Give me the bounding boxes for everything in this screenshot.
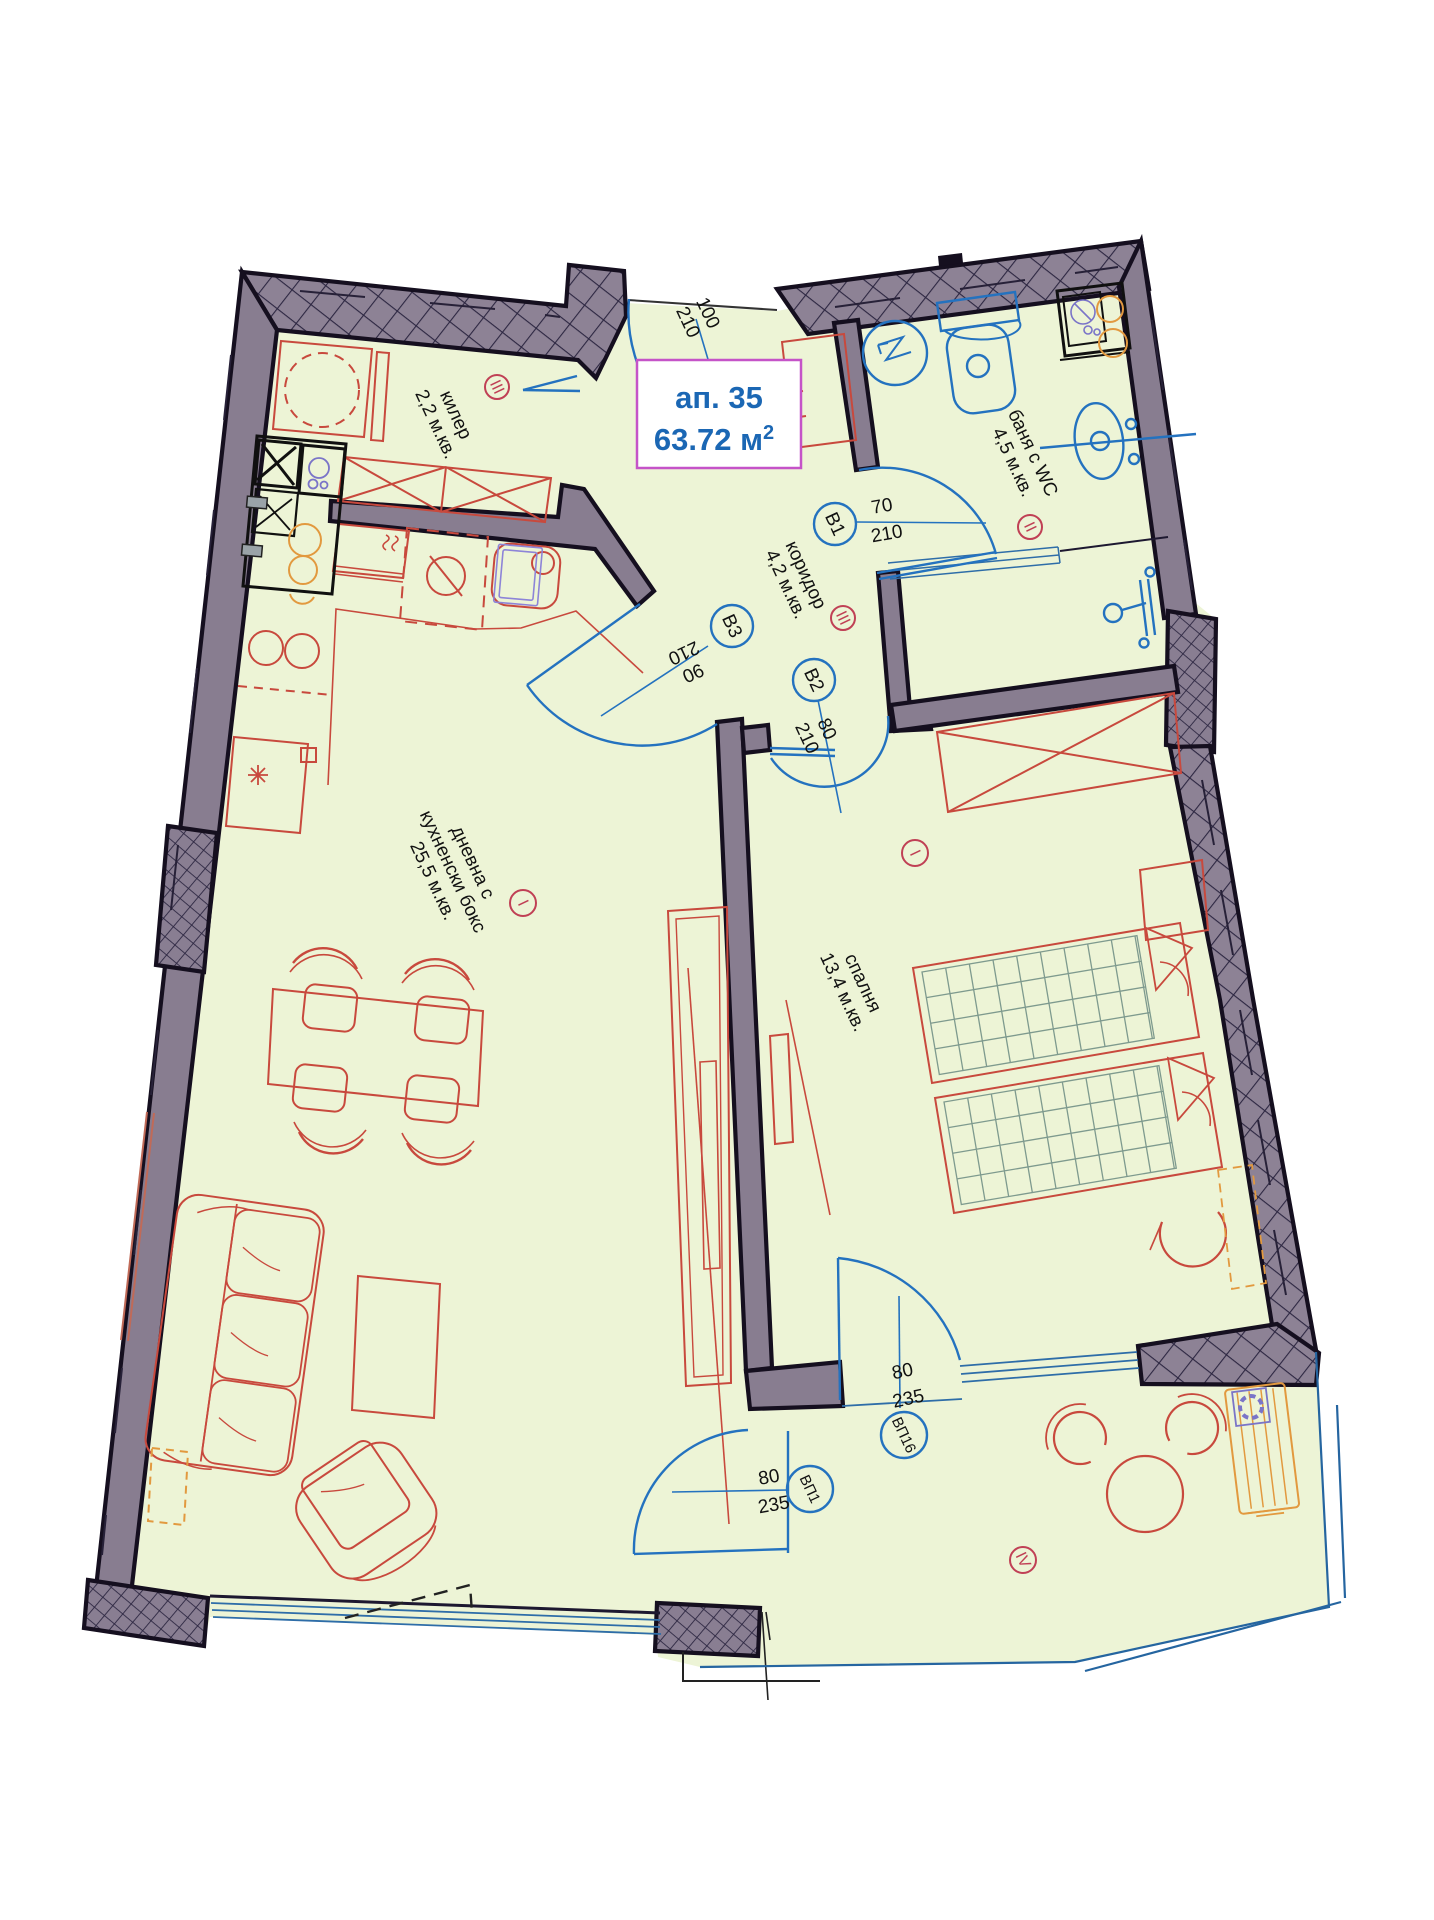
svg-text:70: 70 — [870, 494, 894, 518]
svg-text:ап. 35: ап. 35 — [675, 380, 763, 415]
svg-text:80: 80 — [757, 1465, 781, 1489]
svg-text:80: 80 — [890, 1359, 915, 1384]
svg-text:63.72 м2: 63.72 м2 — [654, 422, 774, 457]
